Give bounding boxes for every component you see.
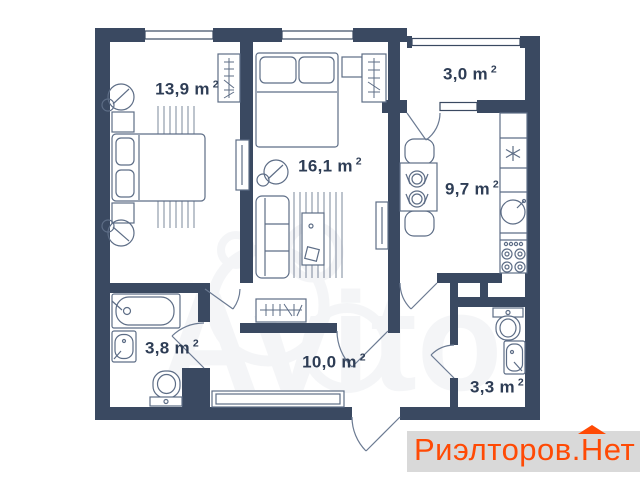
wardrobe-icon: [256, 299, 306, 322]
area-sup: 2: [491, 64, 497, 76]
wardrobe-icon: [218, 54, 240, 102]
bed-icon: [256, 53, 338, 147]
door-balcony: [407, 113, 440, 140]
coffee-table-icon: [302, 213, 324, 265]
radiator-icon: [376, 202, 388, 249]
washbasin-icon: [504, 341, 525, 374]
badge-suffix: ет: [604, 432, 635, 467]
plant-icon: [257, 160, 288, 186]
area-sup: 2: [493, 179, 499, 191]
window-bedroom: [145, 31, 213, 39]
area-sup: 2: [356, 156, 362, 168]
door-entrance: [352, 417, 400, 451]
room-area-label-kitchen: 9,7 m2: [445, 179, 499, 200]
room-area-label-bedroom: 13,9 m2: [155, 79, 219, 100]
window-balcony-glazing: [412, 39, 520, 46]
brand-watermark-badge: Риэлторов.Нет: [407, 431, 640, 472]
area-sup: 2: [213, 79, 219, 91]
window-balcony-kitchen: [440, 103, 477, 111]
badge-letter: Н: [581, 432, 604, 467]
badge-house-letter: Н: [581, 432, 604, 468]
area-sup: 2: [193, 338, 199, 350]
toilet-icon: [493, 308, 523, 340]
hallway-cabinet-icon: [212, 391, 344, 407]
floor-plan-drawing: Avito: [0, 0, 640, 478]
washbasin-icon: [112, 331, 136, 362]
floor-plan-page: Avito: [0, 0, 640, 478]
side-table-icon: [342, 57, 362, 77]
sofa-icon: [256, 196, 289, 278]
kitchen-counter-icon: [500, 113, 527, 273]
room-area-label-hallway: 10,0 m2: [302, 352, 366, 373]
badge-prefix: Риэлторов.: [414, 432, 581, 467]
toilet-icon: [150, 371, 182, 406]
dining-table-icon: [400, 163, 437, 211]
room-area-label-toilet: 3,3 m2: [470, 377, 524, 398]
wardrobe-icon: [362, 54, 386, 102]
bathtub-icon: [112, 294, 180, 328]
area-sup: 2: [360, 352, 366, 364]
window-living: [282, 31, 353, 39]
room-area-label-living: 16,1 m2: [298, 156, 362, 177]
bed-icon: [112, 134, 205, 201]
entrance-opening: [352, 407, 400, 420]
area-value: 3,8 m: [145, 338, 190, 357]
radiator-icon: [236, 140, 249, 190]
room-area-label-bathroom: 3,8 m2: [145, 338, 199, 359]
area-value: 13,9 m: [155, 79, 210, 98]
area-value: 16,1 m: [298, 156, 353, 175]
area-value: 3,3 m: [470, 377, 515, 396]
area-value: 10,0 m: [302, 352, 357, 371]
area-sup: 2: [518, 377, 524, 389]
area-value: 3,0 m: [443, 64, 488, 83]
room-area-label-balcony: 3,0 m2: [443, 64, 497, 85]
area-value: 9,7 m: [445, 179, 490, 198]
